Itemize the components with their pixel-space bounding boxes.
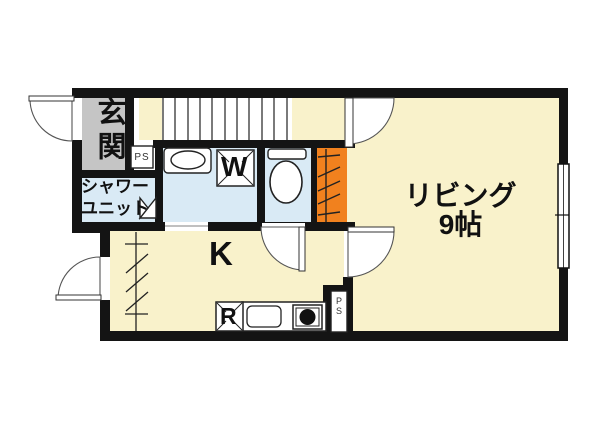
stair-risers [163, 98, 287, 140]
refrigerator-label: R [220, 303, 237, 330]
kitchen-step-symbol [125, 232, 148, 331]
hall-living-door-leaf [345, 98, 353, 147]
hall-living-door-arc [348, 98, 394, 144]
kitchen-counter [242, 302, 326, 331]
washing-machine-label: W [221, 151, 247, 183]
pipe-space-bottom-label: PS [334, 296, 343, 316]
entrance-door-arc [30, 99, 72, 141]
kitchen-sink-icon [247, 306, 281, 327]
floor-plan: 玄関 PS シャワー ユニット W K リビング 9帖 R PS [0, 0, 600, 425]
shower-unit-label-line2: ユニット [81, 198, 149, 220]
kitchen-label: K [209, 235, 233, 273]
toilet-icon [268, 149, 306, 203]
kitchen-exterior-door-arc [58, 257, 100, 299]
ladder-hatch [318, 149, 340, 222]
toilet-door-leaf [299, 227, 305, 271]
living-size-label: 9帖 [378, 210, 543, 240]
entrance-label: 玄関 [88, 97, 130, 165]
window-icon [555, 164, 569, 268]
entrance-door-leaf [29, 96, 74, 101]
shower-unit-label-line1: シャワー [81, 176, 149, 198]
living-label: リビング [378, 181, 543, 211]
kitchen-exterior-door-leaf [56, 295, 101, 300]
toilet-door-arc [261, 227, 304, 270]
pipe-space-top-label: PS [131, 146, 153, 168]
sink-icon [164, 148, 211, 173]
